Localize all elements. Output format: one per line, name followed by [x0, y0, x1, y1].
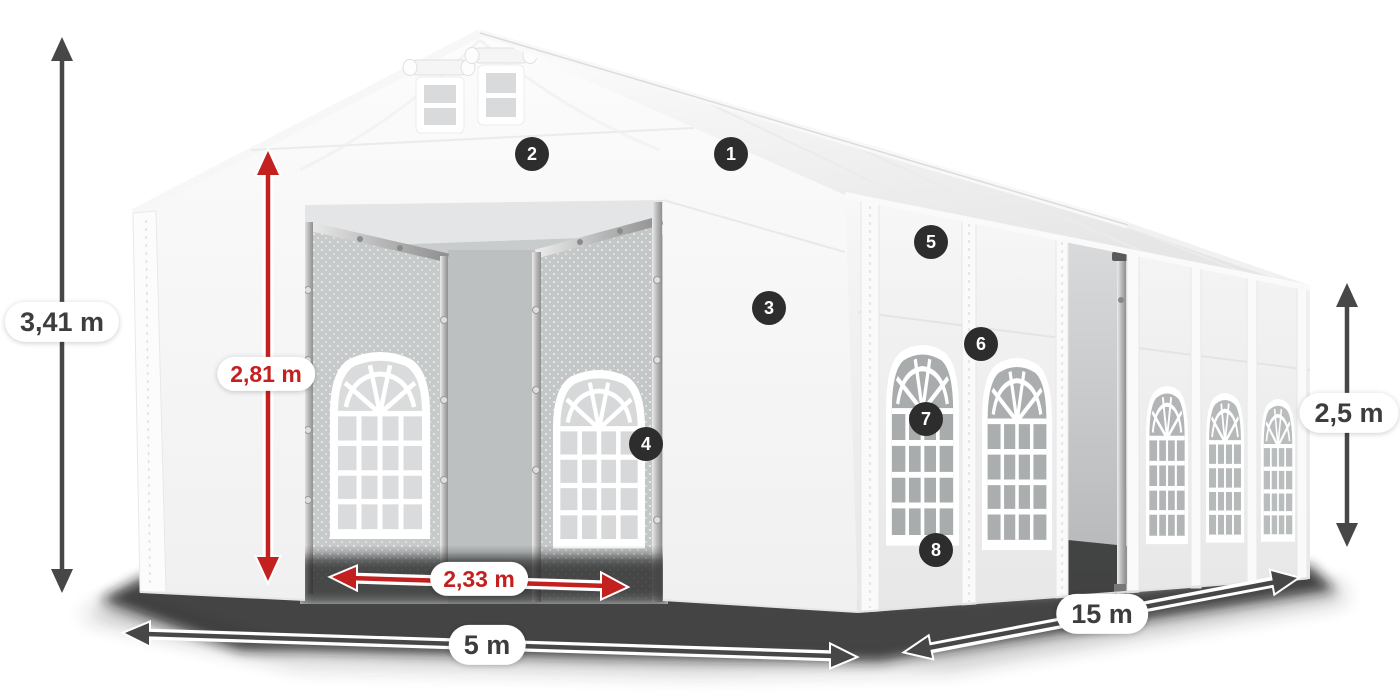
tent-interior — [300, 194, 668, 604]
total-height-label: 3,41 m — [5, 302, 119, 342]
interior-window-right — [553, 370, 645, 549]
tent-diagram-stage: 3,41 m 2,81 m 2,33 m 5 m 15 m 2,5 m 1 2 … — [0, 0, 1400, 700]
interior-door-panel-left — [312, 228, 446, 588]
front-width-label: 5 m — [449, 625, 526, 665]
interior-window-left — [330, 352, 430, 539]
side-window-5 — [1261, 399, 1295, 542]
length-label: 15 m — [1056, 594, 1148, 634]
side-doorway — [1068, 240, 1130, 596]
side-window-4 — [1206, 393, 1244, 543]
entrance-width-label: 2,33 m — [430, 562, 528, 596]
callout-7[interactable]: 7 — [909, 402, 943, 436]
side-height-label: 2,5 m — [1299, 393, 1398, 433]
tent-illustration — [0, 0, 1400, 700]
callout-6[interactable]: 6 — [964, 327, 998, 361]
callout-4[interactable]: 4 — [629, 427, 663, 461]
interior-door-panel-right — [540, 224, 660, 600]
callout-5[interactable]: 5 — [914, 225, 948, 259]
callout-1[interactable]: 1 — [714, 137, 748, 171]
callout-3[interactable]: 3 — [752, 291, 786, 325]
entrance-height-label: 2,81 m — [217, 357, 315, 391]
callout-8[interactable]: 8 — [919, 533, 953, 567]
side-window-3 — [1146, 386, 1188, 544]
tent-side-wall — [845, 195, 1310, 612]
side-window-2 — [982, 358, 1052, 550]
callout-2[interactable]: 2 — [515, 137, 549, 171]
side-window-1 — [886, 345, 959, 546]
